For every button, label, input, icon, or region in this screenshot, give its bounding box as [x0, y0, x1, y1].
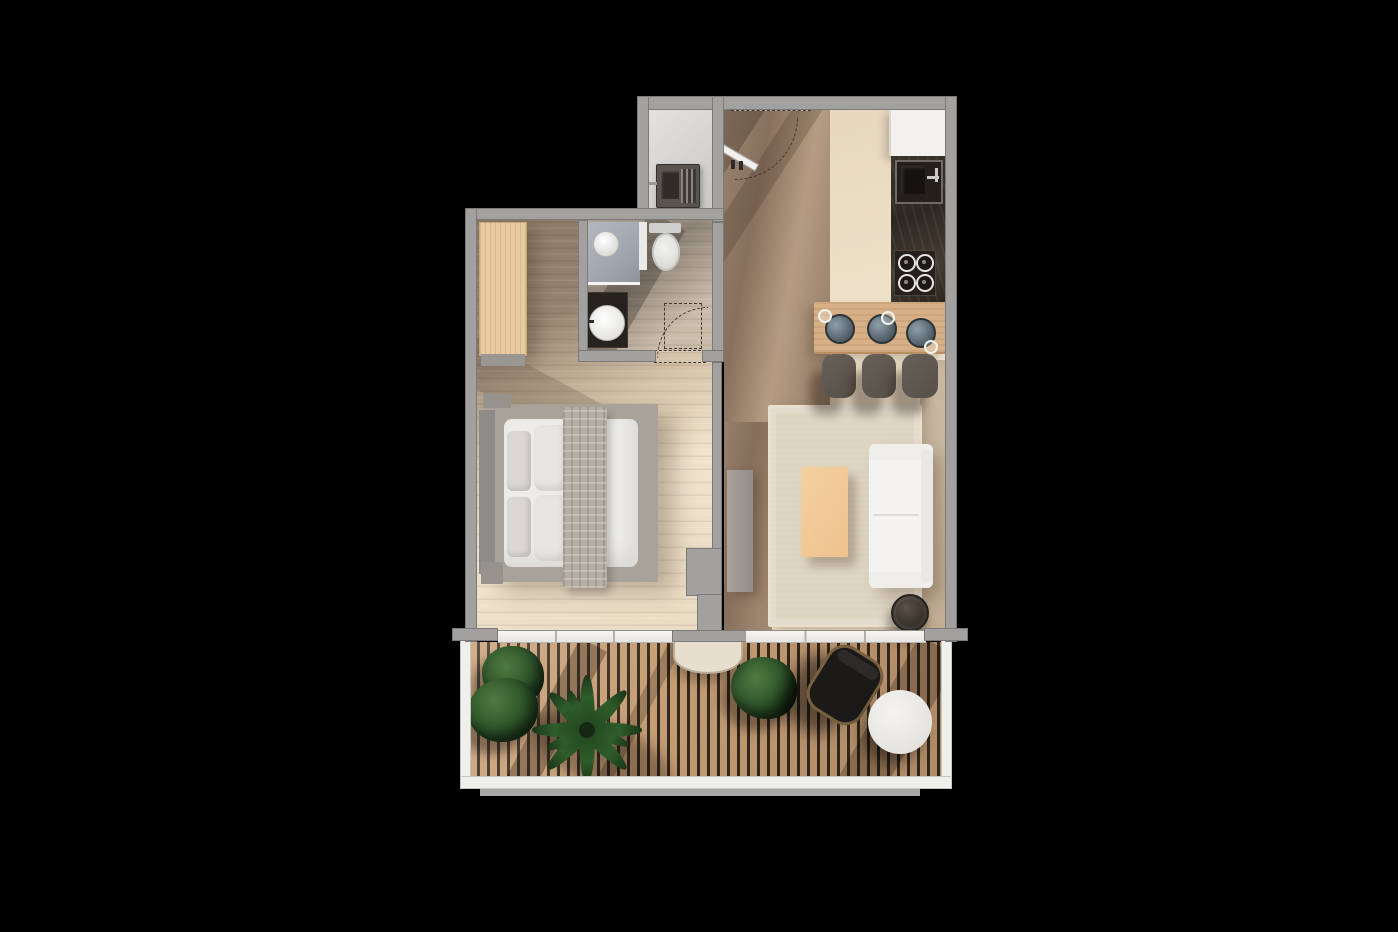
balcony-round-table [868, 690, 932, 754]
shower-glass-screen [588, 282, 640, 285]
wall-block-lower [697, 594, 722, 632]
wall-upper-left [637, 96, 649, 220]
balcony-outer-ledge [480, 789, 920, 796]
utility-sink-unit [656, 164, 700, 208]
burner-icon [898, 254, 916, 272]
bar-stool-2 [862, 354, 896, 398]
kitchen-sink [895, 160, 943, 204]
bar-stool-1 [822, 354, 856, 398]
bathroom-door-leaf-marker [664, 303, 702, 349]
side-table-round [891, 594, 929, 632]
wall-bottom-right-stub [924, 628, 968, 641]
toilet-bowl [652, 233, 680, 271]
utility-faucet-icon [648, 182, 657, 185]
apartment-floor-plan [0, 0, 1398, 932]
coffee-table [801, 467, 848, 557]
bar-glass-2 [881, 311, 895, 325]
wall-bathroom-bottom [578, 350, 656, 362]
toilet-tank [649, 223, 681, 233]
wall-niche-right [712, 96, 724, 222]
sliding-door-right [746, 630, 926, 643]
wall-left [465, 208, 477, 642]
bathroom-door-threshold [654, 350, 706, 363]
balcony-plant-tropical [527, 675, 647, 785]
wall-top [637, 96, 957, 110]
sofa [869, 444, 933, 588]
kitchen-sink-basin [901, 166, 925, 194]
sliding-door-left [498, 630, 674, 643]
balcony-railing-left [460, 632, 471, 782]
entrance-hinge-mark-1 [731, 160, 735, 169]
balcony-railing-right [941, 632, 952, 782]
kitchen-faucet-stem [935, 168, 938, 182]
wardrobe [479, 222, 527, 356]
vanity-basin [589, 305, 625, 341]
tropical-plant-center [579, 722, 595, 738]
shower-head-icon [593, 231, 619, 257]
bed-pillow-small-1 [507, 431, 531, 491]
nightstand-bottom [481, 562, 503, 584]
wall-bathroom-right [712, 222, 724, 362]
wall-bathroom-left [578, 220, 588, 362]
utility-drying-rack [681, 169, 696, 203]
balcony-plant-bush-3 [731, 657, 797, 719]
burner-icon [916, 274, 934, 292]
floor-plan-scene [0, 0, 1398, 932]
balcony-railing-bottom [460, 776, 952, 789]
tv-console [727, 470, 753, 592]
sofa-backrest [921, 450, 933, 582]
kitchen-tall-cabinet [889, 110, 945, 156]
bar-glass-3 [924, 340, 938, 354]
bed-plaid-throw [563, 407, 607, 588]
bathroom-divider [639, 222, 647, 270]
wall-left-wing-top [465, 208, 724, 220]
wardrobe-base [481, 354, 525, 366]
wall-block-mid [686, 548, 722, 596]
bed-headboard [479, 410, 495, 574]
entrance-hinge-mark-2 [739, 161, 743, 170]
sofa-cushion-seam [873, 514, 919, 516]
bar-stool-3 [902, 354, 938, 398]
nightstand-top [483, 394, 511, 408]
wall-right [945, 96, 957, 642]
cooktop [894, 250, 936, 296]
wall-bathroom-bottom-stub [702, 350, 724, 362]
wall-bottom-center [672, 630, 748, 642]
bar-glass-1 [818, 309, 832, 323]
burner-icon [916, 254, 934, 272]
wall-bedroom-living [712, 362, 722, 550]
utility-sink-basin [661, 171, 679, 199]
wall-bottom-left-stub [452, 628, 498, 641]
burner-icon [898, 274, 916, 292]
semicircle-table [673, 638, 743, 674]
bed-pillow-small-2 [507, 497, 531, 557]
